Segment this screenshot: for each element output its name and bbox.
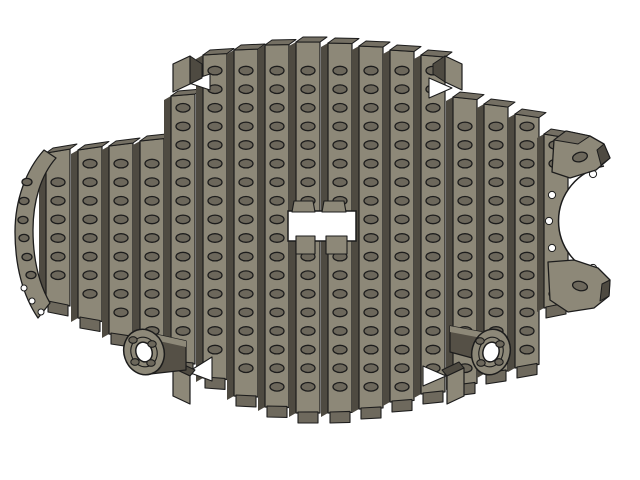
counterbore-hole bbox=[22, 178, 32, 185]
counterbore-hole bbox=[364, 178, 378, 187]
counterbore-hole bbox=[239, 178, 253, 187]
counterbore-hole bbox=[83, 290, 97, 299]
counterbore-hole bbox=[333, 66, 347, 75]
counterbore-hole bbox=[208, 234, 222, 243]
counterbore-hole bbox=[489, 159, 503, 168]
counterbore-hole bbox=[51, 234, 65, 243]
slat-side-face bbox=[164, 96, 171, 366]
cutout-stub bbox=[296, 236, 315, 254]
counterbore-hole bbox=[239, 141, 253, 150]
counterbore-hole bbox=[364, 215, 378, 224]
counterbore-hole bbox=[270, 197, 284, 206]
counterbore-hole bbox=[395, 85, 409, 94]
counterbore-hole bbox=[83, 215, 97, 224]
counterbore-hole bbox=[333, 290, 347, 299]
counterbore-hole bbox=[208, 141, 222, 150]
counterbore-hole bbox=[270, 327, 284, 336]
counterbore-hole bbox=[364, 252, 378, 261]
counterbore-hole bbox=[395, 327, 409, 336]
counterbore-hole bbox=[51, 178, 65, 187]
counterbore-hole bbox=[51, 215, 65, 224]
counterbore-hole bbox=[458, 271, 472, 280]
counterbore-hole bbox=[489, 271, 503, 280]
slat-foot bbox=[392, 399, 412, 412]
hub-bolt-hole bbox=[129, 337, 137, 344]
counterbore-hole bbox=[176, 104, 190, 113]
counterbore-hole bbox=[364, 141, 378, 150]
counterbore-hole bbox=[208, 327, 222, 336]
counterbore-hole bbox=[395, 178, 409, 187]
counterbore-hole bbox=[426, 271, 440, 280]
counterbore-hole bbox=[208, 178, 222, 187]
counterbore-hole bbox=[145, 271, 159, 280]
counterbore-hole bbox=[426, 345, 440, 354]
slat-side-face bbox=[414, 55, 421, 398]
counterbore-hole bbox=[426, 234, 440, 243]
counterbore-hole bbox=[208, 252, 222, 261]
counterbore-hole bbox=[19, 234, 29, 241]
counterbore-hole bbox=[18, 216, 28, 223]
counterbore-hole bbox=[208, 271, 222, 280]
counterbore-hole bbox=[301, 290, 315, 299]
counterbore-hole bbox=[364, 104, 378, 113]
counterbore-hole bbox=[145, 197, 159, 206]
counterbore-hole bbox=[270, 66, 284, 75]
counterbore-hole bbox=[83, 234, 97, 243]
counterbore-hole bbox=[520, 327, 534, 336]
counterbore-hole bbox=[395, 66, 409, 75]
counterbore-hole bbox=[114, 215, 128, 224]
counterbore-hole bbox=[270, 383, 284, 392]
counterbore-hole bbox=[176, 234, 190, 243]
counterbore-hole bbox=[239, 345, 253, 354]
cutout-foot bbox=[292, 201, 315, 212]
slat-side-face bbox=[227, 50, 234, 400]
slat-side-face bbox=[537, 134, 544, 312]
counterbore-hole bbox=[239, 327, 253, 336]
counterbore-hole bbox=[333, 141, 347, 150]
counterbore-hole bbox=[176, 178, 190, 187]
counterbore-hole bbox=[83, 252, 97, 261]
counterbore-hole bbox=[145, 252, 159, 261]
slat-side-face bbox=[71, 150, 78, 322]
counterbore-hole bbox=[426, 252, 440, 261]
counterbore-hole bbox=[270, 104, 284, 113]
counterbore-hole bbox=[333, 122, 347, 131]
counterbore-hole bbox=[208, 104, 222, 113]
counterbore-hole bbox=[301, 178, 315, 187]
slat-side-face bbox=[133, 141, 140, 351]
counterbore-hole bbox=[19, 197, 29, 204]
slat-side-face bbox=[102, 146, 109, 338]
counterbore-hole bbox=[239, 159, 253, 168]
counterbore-hole bbox=[51, 197, 65, 206]
counterbore-hole bbox=[51, 271, 65, 280]
counterbore-hole bbox=[364, 308, 378, 317]
counterbore-hole bbox=[176, 308, 190, 317]
counterbore-hole bbox=[333, 159, 347, 168]
counterbore-hole bbox=[333, 345, 347, 354]
cad-viewport[interactable] bbox=[0, 0, 640, 480]
counterbore-hole bbox=[489, 197, 503, 206]
counterbore-hole bbox=[114, 308, 128, 317]
counterbore-hole bbox=[301, 159, 315, 168]
hub-bolt-hole bbox=[495, 359, 503, 366]
counterbore-hole bbox=[51, 252, 65, 261]
counterbore-hole bbox=[426, 290, 440, 299]
counterbore-hole bbox=[176, 271, 190, 280]
counterbore-hole bbox=[208, 159, 222, 168]
counterbore-hole bbox=[520, 234, 534, 243]
counterbore-hole bbox=[208, 197, 222, 206]
counterbore-hole bbox=[270, 178, 284, 187]
counterbore-hole bbox=[114, 234, 128, 243]
slat-front-face bbox=[140, 139, 164, 350]
counterbore-hole bbox=[176, 215, 190, 224]
counterbore-hole bbox=[395, 252, 409, 261]
counterbore-hole bbox=[270, 122, 284, 131]
slat-front-face bbox=[171, 94, 195, 364]
counterbore-hole bbox=[458, 234, 472, 243]
counterbore-hole bbox=[395, 122, 409, 131]
counterbore-hole bbox=[395, 383, 409, 392]
counterbore-hole bbox=[426, 104, 440, 113]
counterbore-hole bbox=[364, 122, 378, 131]
counterbore-hole bbox=[114, 197, 128, 206]
counterbore-hole bbox=[270, 345, 284, 354]
counterbore-hole bbox=[208, 308, 222, 317]
counterbore-hole bbox=[145, 308, 159, 317]
counterbore-hole bbox=[458, 122, 472, 131]
counterbore-hole bbox=[489, 252, 503, 261]
counterbore-hole bbox=[114, 252, 128, 261]
counterbore-hole bbox=[239, 122, 253, 131]
counterbore-hole bbox=[333, 85, 347, 94]
counterbore-hole bbox=[333, 178, 347, 187]
counterbore-hole bbox=[176, 197, 190, 206]
counterbore-hole bbox=[333, 271, 347, 280]
counterbore-hole bbox=[520, 178, 534, 187]
counterbore-hole bbox=[239, 290, 253, 299]
counterbore-hole bbox=[489, 308, 503, 317]
counterbore-hole bbox=[458, 308, 472, 317]
counterbore-hole bbox=[145, 215, 159, 224]
hub-bolt-hole bbox=[477, 360, 485, 367]
counterbore-hole bbox=[145, 178, 159, 187]
counterbore-hole bbox=[83, 159, 97, 168]
counterbore-hole bbox=[489, 122, 503, 131]
counterbore-hole bbox=[364, 66, 378, 75]
counterbore-hole bbox=[364, 290, 378, 299]
cutout-stub bbox=[326, 236, 347, 254]
counterbore-hole bbox=[176, 327, 190, 336]
counterbore-hole bbox=[239, 234, 253, 243]
counterbore-hole bbox=[26, 271, 36, 278]
counterbore-hole bbox=[426, 159, 440, 168]
counterbore-hole bbox=[114, 159, 128, 168]
counterbore-hole bbox=[395, 271, 409, 280]
fin-nick bbox=[29, 298, 35, 304]
counterbore-hole bbox=[458, 178, 472, 187]
counterbore-hole bbox=[458, 252, 472, 261]
counterbore-hole bbox=[145, 234, 159, 243]
counterbore-hole bbox=[270, 234, 284, 243]
counterbore-hole bbox=[520, 159, 534, 168]
counterbore-hole bbox=[489, 234, 503, 243]
counterbore-hole bbox=[458, 215, 472, 224]
counterbore-hole bbox=[270, 85, 284, 94]
counterbore-hole bbox=[301, 122, 315, 131]
counterbore-hole bbox=[239, 85, 253, 94]
slat-side-face bbox=[196, 55, 203, 382]
counterbore-hole bbox=[301, 271, 315, 280]
counterbore-hole bbox=[114, 178, 128, 187]
counterbore-hole bbox=[239, 271, 253, 280]
slat-side-face bbox=[383, 50, 390, 406]
counterbore-hole bbox=[458, 141, 472, 150]
counterbore-hole bbox=[395, 197, 409, 206]
counterbore-hole bbox=[208, 215, 222, 224]
counterbore-hole bbox=[520, 122, 534, 131]
counterbore-hole bbox=[364, 159, 378, 168]
counterbore-hole bbox=[489, 141, 503, 150]
counterbore-hole bbox=[458, 197, 472, 206]
cutout-foot bbox=[322, 201, 346, 212]
counterbore-hole bbox=[520, 308, 534, 317]
fin-nick bbox=[38, 309, 44, 315]
counterbore-hole bbox=[426, 197, 440, 206]
counterbore-hole bbox=[270, 159, 284, 168]
counterbore-hole bbox=[270, 364, 284, 373]
counterbore-hole bbox=[301, 104, 315, 113]
counterbore-hole bbox=[333, 327, 347, 336]
slat-side-face bbox=[258, 45, 265, 411]
slat-foot bbox=[361, 407, 381, 419]
counterbore-hole bbox=[520, 141, 534, 150]
counterbore-hole bbox=[208, 122, 222, 131]
counterbore-hole bbox=[22, 253, 32, 260]
counterbore-hole bbox=[114, 290, 128, 299]
counterbore-hole bbox=[333, 364, 347, 373]
claw-nick bbox=[548, 244, 555, 251]
counterbore-hole bbox=[239, 104, 253, 113]
counterbore-hole bbox=[301, 327, 315, 336]
counterbore-hole bbox=[364, 197, 378, 206]
hub-bolt-hole bbox=[496, 341, 504, 348]
counterbore-hole bbox=[520, 271, 534, 280]
slat-foot bbox=[298, 412, 318, 423]
counterbore-hole bbox=[208, 290, 222, 299]
counterbore-hole bbox=[270, 308, 284, 317]
slat-foot bbox=[423, 391, 443, 404]
counterbore-hole bbox=[489, 178, 503, 187]
counterbore-hole bbox=[83, 197, 97, 206]
counterbore-hole bbox=[239, 308, 253, 317]
counterbore-hole bbox=[520, 290, 534, 299]
counterbore-hole bbox=[270, 290, 284, 299]
counterbore-hole bbox=[520, 197, 534, 206]
model-svg bbox=[0, 0, 640, 480]
counterbore-hole bbox=[301, 66, 315, 75]
counterbore-hole bbox=[83, 178, 97, 187]
counterbore-hole bbox=[145, 290, 159, 299]
counterbore-hole bbox=[520, 215, 534, 224]
counterbore-hole bbox=[270, 141, 284, 150]
counterbore-hole bbox=[301, 85, 315, 94]
counterbore-hole bbox=[458, 290, 472, 299]
counterbore-hole bbox=[176, 159, 190, 168]
counterbore-hole bbox=[395, 234, 409, 243]
slat-foot bbox=[330, 411, 350, 423]
counterbore-hole bbox=[83, 271, 97, 280]
counterbore-hole bbox=[364, 327, 378, 336]
counterbore-hole bbox=[458, 159, 472, 168]
counterbore-hole bbox=[301, 308, 315, 317]
counterbore-hole bbox=[270, 271, 284, 280]
counterbore-hole bbox=[395, 308, 409, 317]
counterbore-hole bbox=[239, 66, 253, 75]
counterbore-hole bbox=[395, 159, 409, 168]
hub-bolt-hole bbox=[131, 359, 139, 366]
counterbore-hole bbox=[333, 383, 347, 392]
counterbore-hole bbox=[239, 197, 253, 206]
counterbore-hole bbox=[395, 104, 409, 113]
counterbore-hole bbox=[364, 383, 378, 392]
counterbore-hole bbox=[426, 122, 440, 131]
counterbore-hole bbox=[395, 364, 409, 373]
counterbore-hole bbox=[301, 141, 315, 150]
counterbore-hole bbox=[208, 345, 222, 354]
counterbore-hole bbox=[301, 345, 315, 354]
hub-bolt-hole bbox=[147, 360, 155, 367]
counterbore-hole bbox=[176, 122, 190, 131]
counterbore-hole bbox=[301, 383, 315, 392]
counterbore-hole bbox=[395, 345, 409, 354]
counterbore-hole bbox=[426, 141, 440, 150]
slat-side-face bbox=[508, 114, 515, 372]
counterbore-hole bbox=[520, 252, 534, 261]
counterbore-hole bbox=[489, 290, 503, 299]
counterbore-hole bbox=[364, 345, 378, 354]
fin-nick bbox=[21, 285, 27, 291]
slat-foot bbox=[267, 406, 287, 417]
counterbore-hole bbox=[176, 141, 190, 150]
counterbore-hole bbox=[364, 271, 378, 280]
slat-foot bbox=[236, 395, 256, 407]
counterbore-hole bbox=[176, 252, 190, 261]
counterbore-hole bbox=[176, 290, 190, 299]
counterbore-hole bbox=[364, 234, 378, 243]
counterbore-hole bbox=[239, 252, 253, 261]
counterbore-hole bbox=[395, 141, 409, 150]
slat-front-face bbox=[46, 149, 70, 306]
claw-nick bbox=[545, 217, 552, 224]
counterbore-hole bbox=[364, 364, 378, 373]
counterbore-hole bbox=[333, 104, 347, 113]
counterbore-hole bbox=[270, 215, 284, 224]
counterbore-hole bbox=[395, 290, 409, 299]
counterbore-hole bbox=[426, 215, 440, 224]
counterbore-hole bbox=[301, 364, 315, 373]
counterbore-hole bbox=[426, 327, 440, 336]
counterbore-hole bbox=[145, 159, 159, 168]
claw-nick bbox=[548, 191, 555, 198]
counterbore-hole bbox=[426, 308, 440, 317]
counterbore-hole bbox=[239, 215, 253, 224]
counterbore-hole bbox=[239, 364, 253, 373]
counterbore-hole bbox=[426, 178, 440, 187]
counterbore-hole bbox=[520, 345, 534, 354]
counterbore-hole bbox=[364, 85, 378, 94]
counterbore-hole bbox=[270, 252, 284, 261]
hub-bolt-hole bbox=[476, 338, 484, 345]
counterbore-hole bbox=[489, 215, 503, 224]
hub-bolt-hole bbox=[148, 341, 156, 348]
counterbore-hole bbox=[114, 271, 128, 280]
counterbore-hole bbox=[333, 308, 347, 317]
counterbore-hole bbox=[395, 215, 409, 224]
